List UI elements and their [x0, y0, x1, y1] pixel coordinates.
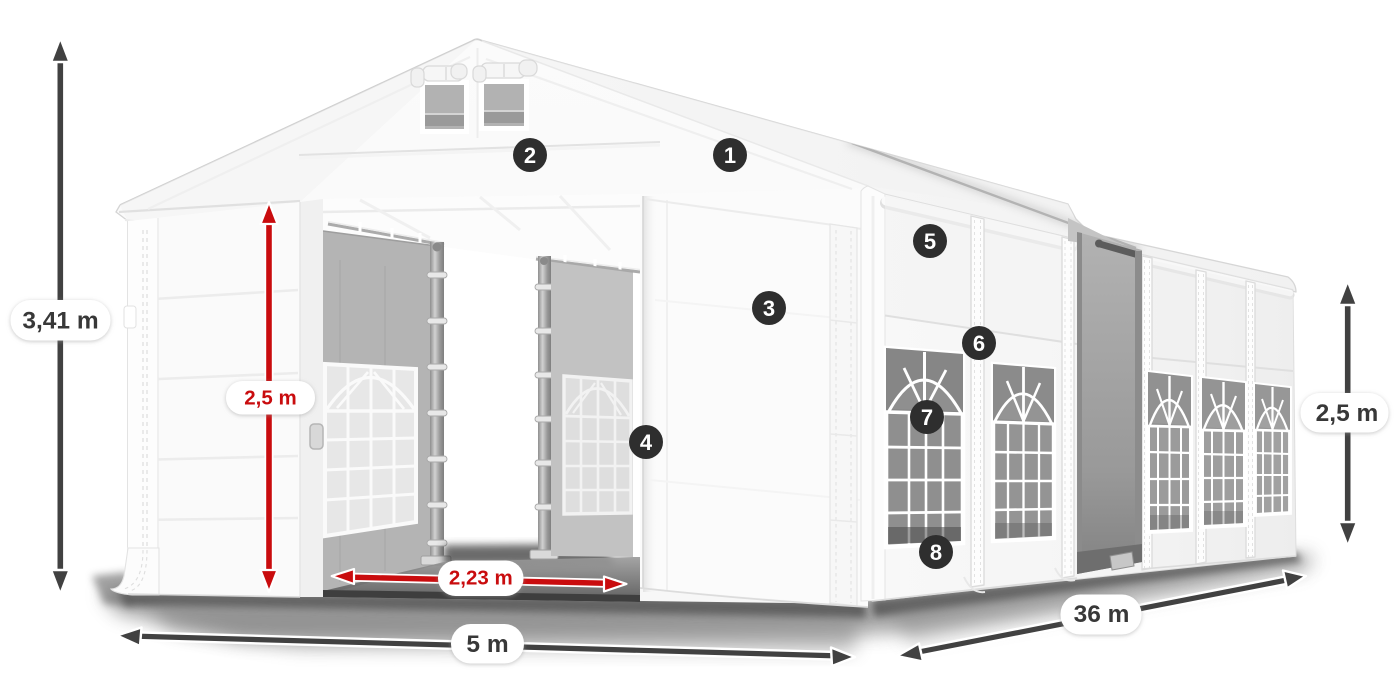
svg-text:1: 1: [724, 143, 736, 168]
svg-text:2,23 m: 2,23 m: [449, 567, 513, 590]
svg-text:2,5 m: 2,5 m: [244, 387, 296, 410]
svg-text:36 m: 36 m: [1074, 601, 1130, 628]
svg-text:4: 4: [640, 430, 653, 455]
svg-text:5: 5: [924, 229, 936, 254]
svg-text:3,41 m: 3,41 m: [22, 308, 98, 335]
svg-text:7: 7: [921, 405, 933, 430]
svg-text:3: 3: [763, 296, 775, 321]
svg-text:5 m: 5 m: [466, 631, 508, 658]
svg-text:2,5 m: 2,5 m: [1316, 400, 1379, 427]
svg-text:6: 6: [973, 331, 985, 356]
svg-text:2: 2: [524, 143, 536, 168]
svg-text:8: 8: [930, 540, 942, 565]
